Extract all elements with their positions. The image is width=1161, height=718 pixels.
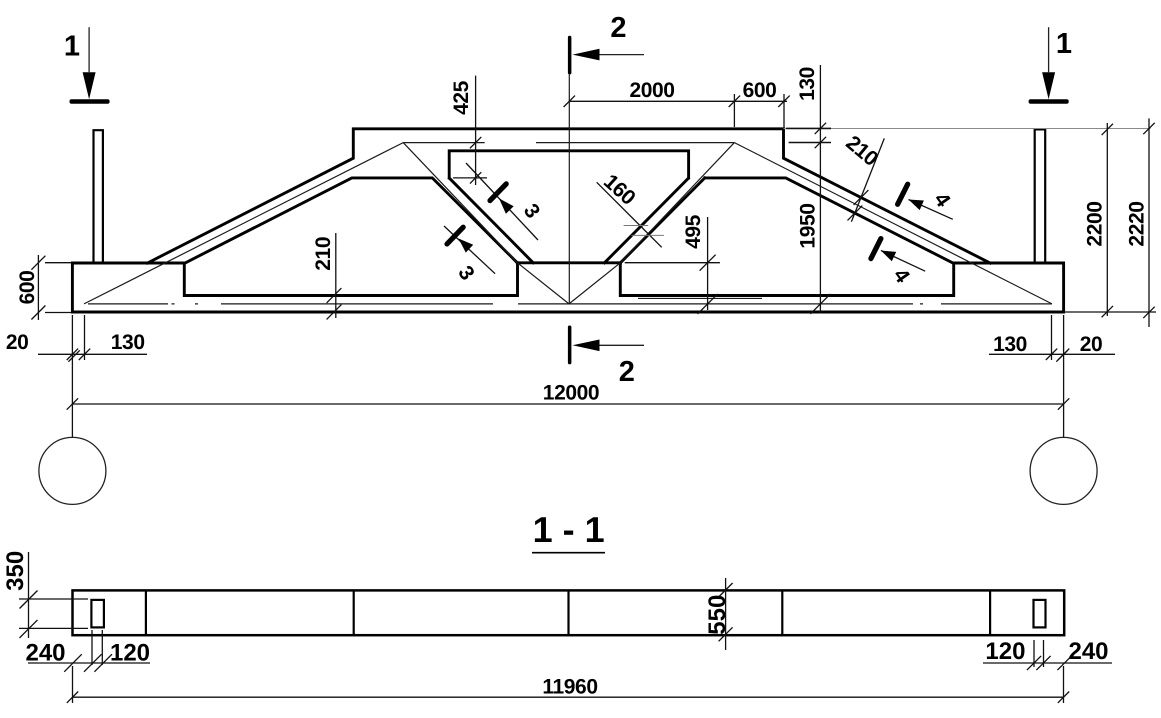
- svg-text:20: 20: [6, 331, 29, 354]
- svg-text:120: 120: [985, 638, 1025, 665]
- svg-text:2: 2: [619, 356, 635, 388]
- svg-text:130: 130: [796, 67, 819, 101]
- svg-text:350: 350: [2, 551, 29, 591]
- svg-text:240: 240: [25, 640, 65, 667]
- svg-text:600: 600: [16, 271, 39, 305]
- svg-text:2220: 2220: [1126, 201, 1149, 246]
- svg-text:2200: 2200: [1084, 201, 1107, 246]
- svg-text:160: 160: [599, 170, 640, 210]
- svg-text:3: 3: [453, 262, 479, 285]
- svg-text:1: 1: [1056, 28, 1072, 60]
- svg-text:1 - 1: 1 - 1: [533, 509, 605, 550]
- svg-text:130: 130: [111, 331, 145, 354]
- svg-text:550: 550: [704, 595, 731, 635]
- svg-text:240: 240: [1068, 638, 1108, 665]
- svg-text:210: 210: [312, 237, 335, 271]
- svg-text:495: 495: [682, 214, 705, 249]
- svg-text:2000: 2000: [629, 79, 674, 102]
- svg-text:11960: 11960: [542, 675, 597, 698]
- svg-text:4: 4: [889, 264, 915, 287]
- svg-text:1950: 1950: [797, 203, 820, 248]
- svg-text:1: 1: [64, 31, 80, 63]
- svg-text:3: 3: [519, 200, 545, 223]
- svg-text:130: 130: [993, 333, 1027, 356]
- svg-text:210: 210: [841, 131, 882, 170]
- svg-text:120: 120: [110, 640, 150, 667]
- svg-text:425: 425: [450, 80, 473, 115]
- svg-text:2: 2: [610, 12, 626, 44]
- svg-text:600: 600: [743, 79, 777, 102]
- svg-text:4: 4: [929, 189, 955, 212]
- svg-text:20: 20: [1080, 333, 1103, 356]
- svg-text:12000: 12000: [543, 381, 599, 404]
